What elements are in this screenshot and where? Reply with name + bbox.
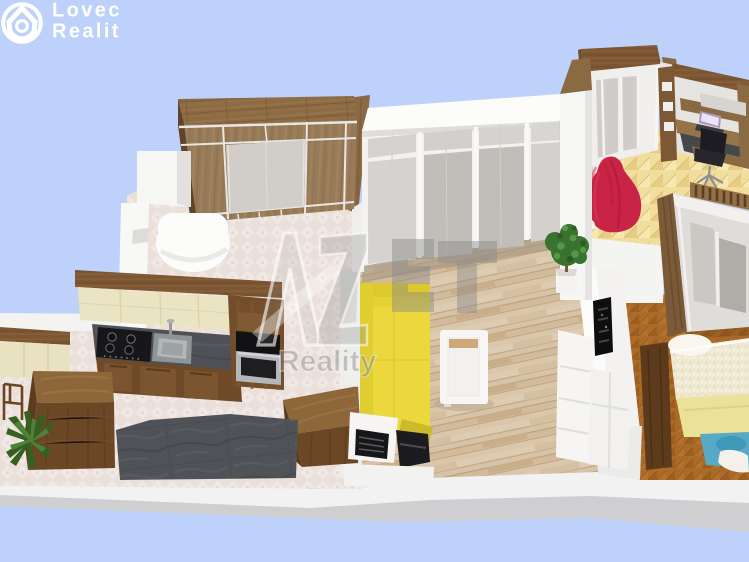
svg-text:Lovec: Lovec — [52, 0, 122, 22]
svg-text:Realit: Realit — [52, 21, 121, 43]
svg-text:Reality: Reality — [278, 345, 377, 378]
